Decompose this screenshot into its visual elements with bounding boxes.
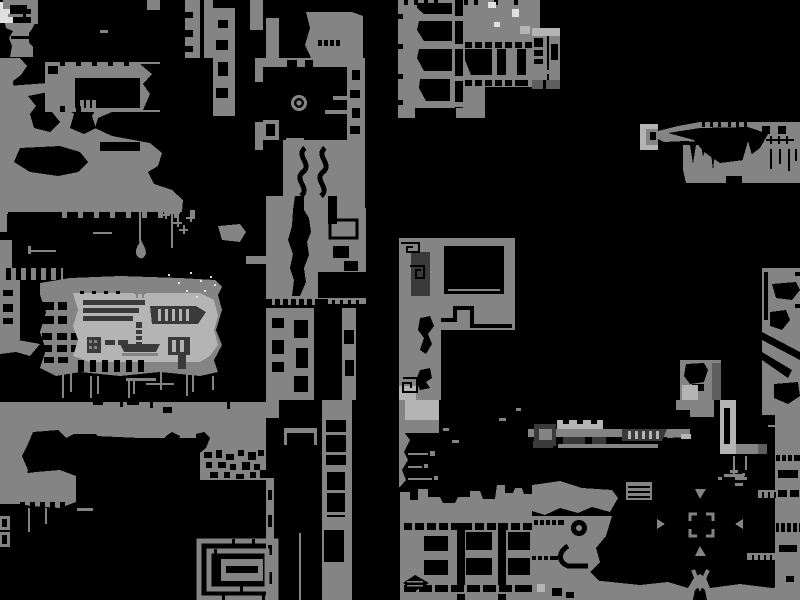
map-shape xyxy=(42,333,52,340)
map-shape xyxy=(455,76,463,81)
map-shape xyxy=(522,42,525,48)
map-shape xyxy=(186,309,189,321)
map-shape xyxy=(330,40,334,46)
map-shape xyxy=(785,523,787,532)
map-shape xyxy=(185,46,193,52)
map-shape xyxy=(628,486,650,488)
map-shape xyxy=(226,454,234,460)
map-shape xyxy=(58,357,68,363)
room xyxy=(424,536,448,551)
map-shape xyxy=(332,300,335,305)
map-shape xyxy=(730,470,738,473)
room xyxy=(417,49,452,71)
map-shape xyxy=(92,100,96,108)
map-shape xyxy=(142,210,147,218)
map-shape xyxy=(457,557,465,585)
map-shape xyxy=(127,400,139,405)
map-shape xyxy=(171,212,173,248)
map-shape xyxy=(94,346,97,349)
map-shape xyxy=(484,523,487,530)
map-shape xyxy=(656,431,659,439)
map-shape xyxy=(778,490,787,497)
map-shape xyxy=(544,520,546,525)
map-shape xyxy=(404,523,532,530)
map-shape xyxy=(76,62,81,66)
map-shape xyxy=(236,474,244,479)
map-shape xyxy=(312,299,315,305)
map-shape xyxy=(322,432,352,435)
map-shape xyxy=(83,316,133,321)
map-shape xyxy=(160,372,162,390)
map-shape xyxy=(778,136,780,144)
map-shape xyxy=(577,420,583,424)
map-shape xyxy=(185,30,193,37)
map-shape xyxy=(352,70,360,80)
map-shape xyxy=(326,420,346,465)
map-shape xyxy=(512,585,515,592)
map-shape xyxy=(779,149,781,164)
map-shape xyxy=(718,477,722,480)
map-shape xyxy=(322,452,352,455)
map-shape xyxy=(296,348,308,368)
map-shape xyxy=(498,523,506,557)
map-shape xyxy=(168,274,170,276)
map-shape xyxy=(398,14,403,19)
map-shape xyxy=(3,318,13,324)
map-shape xyxy=(272,362,284,372)
map-shape xyxy=(212,376,214,390)
map-shape xyxy=(97,376,99,394)
room xyxy=(417,3,452,14)
map-shape xyxy=(735,477,747,480)
map-shape xyxy=(20,502,25,508)
room xyxy=(508,558,530,575)
map-shape xyxy=(183,225,185,234)
map-shape xyxy=(646,145,658,150)
map-shape xyxy=(776,433,800,435)
map-shape xyxy=(752,555,754,560)
map-shape xyxy=(92,62,97,66)
large-room xyxy=(444,246,504,294)
map-shape xyxy=(537,584,545,592)
map-shape xyxy=(200,280,202,282)
map-shape xyxy=(186,290,188,292)
map-shape xyxy=(218,462,226,468)
map-shape xyxy=(548,556,550,560)
map-shape xyxy=(80,291,84,294)
map-shape xyxy=(758,490,776,498)
map-shape xyxy=(294,376,308,392)
map-shape xyxy=(254,464,260,470)
map-shape xyxy=(304,299,307,305)
map-shape xyxy=(556,520,558,525)
map-shape xyxy=(178,282,180,284)
map-shape xyxy=(448,523,451,530)
map-shape xyxy=(6,268,11,280)
map-shape xyxy=(210,276,212,278)
map-shape xyxy=(724,408,730,444)
map-shape xyxy=(78,360,84,372)
map-shape xyxy=(120,400,123,407)
map-shape xyxy=(60,106,65,112)
map-shape xyxy=(786,576,794,582)
map-shape xyxy=(136,334,142,336)
map-shape xyxy=(16,268,21,280)
map-shape xyxy=(398,44,403,49)
map-shape xyxy=(424,523,427,530)
room xyxy=(508,532,530,550)
map-shape xyxy=(566,592,574,598)
map-shape xyxy=(165,309,168,321)
map-shape xyxy=(408,453,428,455)
map-shape xyxy=(2,519,7,527)
map-shape xyxy=(163,407,172,413)
map-shape xyxy=(464,0,468,5)
map-shape xyxy=(724,474,744,477)
map-shape xyxy=(104,291,108,294)
map-shape xyxy=(216,450,222,458)
map-shape xyxy=(45,508,47,524)
map-shape xyxy=(780,455,782,461)
map-shape xyxy=(266,124,275,136)
map-shape xyxy=(134,292,140,294)
light-block xyxy=(404,400,439,420)
map-shape xyxy=(758,555,760,560)
map-shape xyxy=(272,340,284,354)
map-shape xyxy=(797,523,799,532)
map-shape xyxy=(100,30,108,33)
map-shape xyxy=(89,340,92,343)
small-tower xyxy=(532,28,560,36)
map-shape xyxy=(702,122,705,127)
map-shape xyxy=(297,101,302,106)
map-shape xyxy=(139,205,141,242)
map-shape xyxy=(795,272,800,276)
map-shape xyxy=(26,268,31,280)
map-shape xyxy=(432,585,435,592)
map-shape xyxy=(218,20,228,28)
map-shape xyxy=(23,7,26,21)
map-shape xyxy=(496,585,499,592)
map-shape xyxy=(116,291,120,294)
antenna xyxy=(136,284,138,298)
map-shape xyxy=(770,149,772,169)
map-shape xyxy=(305,60,313,68)
map-shape xyxy=(345,360,354,376)
map-shape xyxy=(786,136,788,144)
map-shape xyxy=(591,420,597,424)
map-shape xyxy=(404,0,408,5)
map-shape xyxy=(204,290,206,292)
map-shape xyxy=(407,581,423,583)
map-shape xyxy=(576,525,582,531)
map-shape xyxy=(40,502,45,508)
map-shape xyxy=(226,566,258,573)
map-shape xyxy=(30,502,35,508)
map-shape xyxy=(628,491,650,493)
map-shape xyxy=(792,455,794,461)
map-shape xyxy=(227,400,230,409)
map-shape xyxy=(252,539,255,545)
map-shape xyxy=(266,400,279,418)
map-shape xyxy=(512,80,515,86)
map-shape xyxy=(318,40,322,46)
map-shape xyxy=(464,585,467,592)
map-shape xyxy=(42,302,54,310)
map-shape xyxy=(735,483,743,486)
map-shape xyxy=(534,38,543,64)
map-shape xyxy=(436,523,439,530)
map-shape xyxy=(147,0,160,10)
map-shape xyxy=(314,433,317,445)
map-shape xyxy=(517,49,526,75)
map-shape xyxy=(768,425,790,427)
map-shape xyxy=(520,26,530,34)
map-shape xyxy=(224,472,230,478)
map-shape xyxy=(114,360,120,372)
map-shape xyxy=(108,62,113,66)
map-shape xyxy=(94,210,99,218)
map-shape xyxy=(65,281,112,283)
map-shape xyxy=(31,0,38,24)
map-shape xyxy=(348,300,351,305)
map-shape xyxy=(185,12,193,18)
map-shape xyxy=(764,555,766,560)
map-shape xyxy=(551,44,558,60)
map-shape xyxy=(190,272,192,274)
map-shape xyxy=(650,132,656,140)
map-shape xyxy=(532,556,558,560)
map-shape xyxy=(443,428,449,431)
map-shape xyxy=(100,142,140,151)
map-shape xyxy=(542,556,544,560)
map-shape xyxy=(628,496,650,498)
map-shape xyxy=(324,40,328,46)
map-shape xyxy=(533,441,553,448)
map-shape xyxy=(342,308,356,400)
map-shape xyxy=(206,462,212,468)
map-shape xyxy=(628,431,631,439)
map-shape xyxy=(758,444,767,454)
map-shape xyxy=(134,287,140,289)
map-shape xyxy=(83,300,145,305)
map-shape xyxy=(325,110,349,114)
map-shape xyxy=(502,80,505,86)
map-shape xyxy=(480,585,483,592)
map-shape xyxy=(124,62,129,66)
map-shape xyxy=(140,287,146,289)
map-shape xyxy=(649,431,652,439)
map-shape xyxy=(268,490,272,500)
map-shape xyxy=(172,340,176,352)
map-shape xyxy=(516,408,521,411)
map-shape xyxy=(172,309,175,321)
map-shape xyxy=(455,44,463,49)
map-shape xyxy=(94,340,97,343)
map-shape xyxy=(407,585,423,587)
map-shape xyxy=(791,523,793,532)
room xyxy=(417,21,452,41)
map-shape xyxy=(179,309,182,321)
map-shape xyxy=(258,450,264,456)
map-shape xyxy=(62,210,67,218)
map-shape xyxy=(90,360,96,372)
map-shape xyxy=(408,466,422,468)
map-shape xyxy=(788,149,790,171)
map-shape xyxy=(0,212,7,232)
map-shape xyxy=(764,272,768,320)
map-shape xyxy=(284,433,287,445)
map-shape xyxy=(508,523,511,530)
map-shape xyxy=(105,340,115,345)
map-shape xyxy=(126,378,156,381)
map-shape xyxy=(36,268,41,280)
map-shape xyxy=(790,490,799,497)
map-shape xyxy=(795,304,800,308)
map-shape xyxy=(46,268,51,280)
map-shape xyxy=(60,502,65,508)
map-shape xyxy=(178,355,186,369)
map-shape xyxy=(136,328,142,330)
map-shape xyxy=(786,455,788,461)
map-shape xyxy=(492,42,495,48)
map-shape xyxy=(192,372,194,392)
map-shape xyxy=(488,2,496,8)
map-shape xyxy=(2,535,7,544)
map-shape xyxy=(296,299,299,305)
map-shape xyxy=(83,308,139,313)
map-shape xyxy=(327,472,345,517)
map-shape xyxy=(398,100,403,105)
map-shape xyxy=(44,357,54,363)
map-shape xyxy=(294,320,308,338)
map-shape xyxy=(196,296,198,298)
map-shape xyxy=(222,594,225,600)
map-shape xyxy=(90,376,92,398)
map-shape xyxy=(3,304,13,312)
map-shape xyxy=(344,330,354,344)
map-shape xyxy=(56,268,61,280)
antenna xyxy=(142,284,144,298)
map-shape xyxy=(250,472,256,478)
map-shape xyxy=(512,42,515,48)
map-shape xyxy=(268,515,272,527)
map-shape xyxy=(778,470,798,478)
map-shape xyxy=(140,292,146,294)
map-shape xyxy=(472,523,475,530)
map-shape xyxy=(250,0,263,30)
map-shape xyxy=(502,42,505,48)
map-shape xyxy=(158,309,161,321)
map-shape xyxy=(424,464,428,468)
map-shape xyxy=(126,360,132,372)
map-shape xyxy=(216,40,228,50)
map-shape xyxy=(457,594,465,600)
map-shape xyxy=(430,451,435,456)
map-shape xyxy=(736,122,739,127)
map-shape xyxy=(70,372,72,392)
map-shape xyxy=(537,70,553,74)
map-shape xyxy=(411,252,430,296)
map-shape xyxy=(50,502,55,508)
map-shape xyxy=(146,383,174,385)
map-shape xyxy=(333,246,349,258)
map-shape xyxy=(514,0,518,5)
map-shape xyxy=(538,520,540,525)
map-shape xyxy=(266,18,279,58)
map-shape xyxy=(635,431,638,439)
map-shape xyxy=(214,284,216,286)
map-shape xyxy=(344,261,358,271)
map-shape xyxy=(62,372,64,398)
map-shape xyxy=(762,492,764,498)
map-shape xyxy=(448,585,451,592)
map-shape xyxy=(180,340,184,352)
map-shape xyxy=(498,557,506,585)
room xyxy=(466,532,492,550)
map-shape xyxy=(333,96,349,100)
map-shape xyxy=(108,279,112,285)
map-shape xyxy=(28,250,56,252)
map-shape xyxy=(350,90,360,98)
map-shape xyxy=(76,106,81,112)
map-shape xyxy=(280,299,283,305)
map-shape xyxy=(646,124,658,129)
map-shape xyxy=(230,464,236,470)
map-shape xyxy=(512,9,519,17)
map-shape xyxy=(0,200,8,214)
map-shape xyxy=(492,80,495,86)
map-shape xyxy=(138,360,144,372)
map-shape xyxy=(186,372,188,396)
map-shape xyxy=(75,78,140,108)
map-shape xyxy=(86,100,90,108)
map-shape xyxy=(482,42,485,48)
map-shape xyxy=(287,60,297,69)
map-shape xyxy=(779,523,781,532)
map-shape xyxy=(58,316,67,324)
map-shape xyxy=(770,136,772,144)
map-shape xyxy=(57,345,67,352)
map-shape xyxy=(340,300,343,305)
map-shape xyxy=(779,545,797,552)
map-shape xyxy=(177,218,179,227)
game-map xyxy=(0,0,800,600)
map-shape xyxy=(710,122,713,127)
map-shape xyxy=(498,594,506,600)
map-shape xyxy=(42,345,52,352)
map-shape xyxy=(28,508,30,532)
map-shape xyxy=(58,302,67,310)
map-shape xyxy=(550,520,552,525)
map-shape xyxy=(93,232,112,234)
map-shape xyxy=(774,492,776,498)
map-shape xyxy=(536,556,538,560)
map-shape xyxy=(472,42,475,48)
map-shape xyxy=(728,122,731,127)
map-shape xyxy=(78,210,83,218)
map-shape xyxy=(552,588,562,596)
map-shape xyxy=(232,539,235,545)
map-shape xyxy=(190,213,192,222)
game-map-screen[interactable] xyxy=(0,0,800,600)
map-shape xyxy=(455,16,463,21)
map-shape xyxy=(87,337,101,353)
map-shape xyxy=(11,36,29,39)
map-shape xyxy=(322,490,352,493)
map-shape xyxy=(260,470,266,478)
map-shape xyxy=(534,47,543,50)
